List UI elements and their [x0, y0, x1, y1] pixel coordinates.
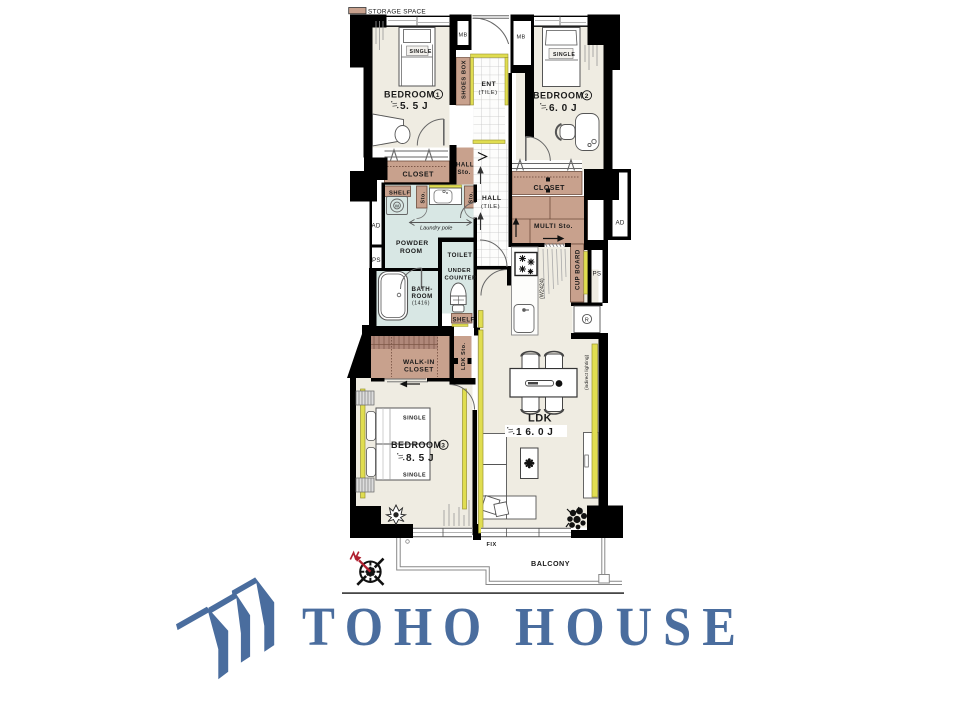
svg-text:HOUSE: HOUSE: [515, 596, 747, 657]
svg-text:CUP BOARD: CUP BOARD: [576, 249, 582, 290]
svg-text:AD: AD: [372, 223, 381, 230]
svg-text:PS: PS: [593, 271, 602, 278]
svg-text:(TILE): (TILE): [481, 204, 500, 210]
svg-text:MB: MB: [517, 35, 526, 41]
svg-text:POWDER: POWDER: [396, 240, 429, 247]
svg-text:SHELF: SHELF: [389, 190, 411, 196]
svg-text:FIX: FIX: [487, 542, 497, 548]
svg-text:(TILE): (TILE): [479, 90, 498, 96]
svg-text:TOHO: TOHO: [302, 596, 492, 657]
svg-text:ROOM: ROOM: [412, 293, 433, 300]
svg-text:BEDROOM: BEDROOM: [391, 440, 442, 450]
svg-text:SINGLE: SINGLE: [410, 49, 432, 55]
svg-text:1 6. 0 J: 1 6. 0 J: [516, 427, 553, 438]
svg-text:AD: AD: [616, 220, 625, 227]
svg-text:Laundry pole: Laundry pole: [420, 226, 452, 232]
svg-text:SHOES BOX: SHOES BOX: [462, 60, 468, 99]
svg-text:R: R: [585, 317, 589, 323]
svg-text:5. 5 J: 5. 5 J: [400, 101, 428, 112]
svg-text:SINGLE: SINGLE: [553, 52, 575, 58]
svg-text:(1416): (1416): [412, 301, 430, 307]
svg-text:HALL: HALL: [482, 195, 502, 202]
svg-text:LDK Sto.: LDK Sto.: [461, 342, 467, 370]
svg-text:Sto.: Sto.: [458, 170, 471, 176]
svg-text:ENT: ENT: [482, 81, 497, 88]
svg-text:Sto.: Sto.: [469, 191, 475, 203]
svg-text:WALK-IN: WALK-IN: [403, 359, 435, 366]
svg-text:BATH-: BATH-: [412, 286, 433, 293]
svg-text:2: 2: [585, 93, 589, 100]
svg-text:PS: PS: [372, 257, 381, 264]
svg-text:BEDROOM: BEDROOM: [384, 90, 435, 100]
svg-text:SINGLE: SINGLE: [403, 416, 426, 422]
svg-text:BEDROOM: BEDROOM: [533, 91, 584, 101]
svg-text:(indirect lighting): (indirect lighting): [584, 354, 590, 390]
svg-text:Sto.: Sto.: [421, 191, 427, 203]
svg-text:UNDER: UNDER: [448, 268, 471, 274]
svg-text:STORAGE SPACE: STORAGE SPACE: [368, 8, 426, 15]
svg-text:BALCONY: BALCONY: [531, 559, 570, 568]
svg-text:3: 3: [441, 443, 445, 450]
svg-text:ROOM: ROOM: [400, 248, 423, 255]
svg-text:CLOSET: CLOSET: [534, 185, 566, 192]
svg-text:COUNTER: COUNTER: [445, 276, 477, 282]
svg-text:W: W: [395, 204, 400, 209]
svg-text:HALL: HALL: [456, 163, 474, 169]
svg-text:MULTI Sto.: MULTI Sto.: [534, 223, 573, 230]
svg-text:MB: MB: [459, 33, 468, 39]
svg-text:TOILET: TOILET: [448, 252, 473, 259]
svg-text:8. 5 J: 8. 5 J: [406, 453, 434, 464]
svg-text:6. 0 J: 6. 0 J: [549, 103, 577, 114]
svg-text:LDK: LDK: [528, 413, 552, 425]
svg-text:SHELF: SHELF: [453, 318, 475, 324]
svg-text:1: 1: [436, 92, 440, 99]
svg-text:(W2424): (W2424): [540, 278, 546, 299]
svg-text:CLOSET: CLOSET: [404, 367, 434, 374]
svg-text:CLOSET: CLOSET: [403, 172, 435, 179]
svg-text:SINGLE: SINGLE: [403, 473, 426, 479]
